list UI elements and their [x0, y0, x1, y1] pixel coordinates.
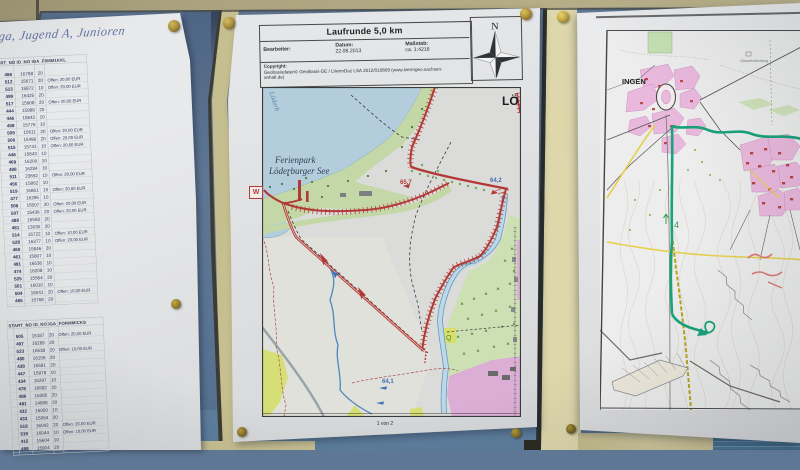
svg-text:4: 4	[674, 220, 679, 230]
svg-text:Gänsefurtherberg: Gänsefurtherberg	[740, 59, 768, 63]
svg-text:INGEN: INGEN	[622, 77, 646, 86]
